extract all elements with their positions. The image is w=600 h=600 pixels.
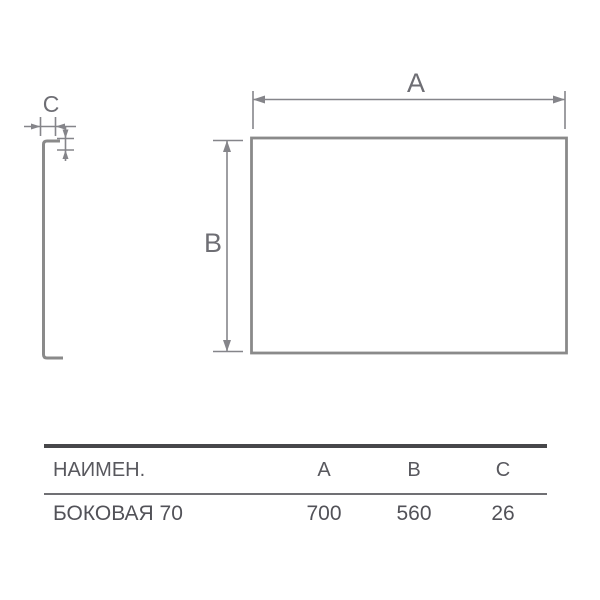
arrowhead-left-icon	[253, 96, 265, 104]
product-dimension-diagram: C A	[0, 0, 600, 600]
arrowhead-up-icon	[223, 141, 231, 153]
arrowhead-down-icon	[63, 130, 69, 139]
dimension-b: B	[204, 141, 243, 352]
arrowhead-up-icon	[63, 150, 69, 159]
cell-value-b: 560	[369, 502, 459, 526]
dim-label-a: A	[407, 68, 425, 98]
dimension-c: C	[24, 91, 76, 161]
spec-table: НАИМЕН. A B C БОКОВАЯ 70 700 560 26	[44, 444, 547, 533]
arrowhead-left-icon	[56, 124, 66, 130]
technical-drawing: C A	[0, 0, 600, 435]
spec-table-header-row: НАИМЕН. A B C	[44, 448, 547, 495]
cell-value-a: 700	[279, 502, 369, 526]
arrowhead-down-icon	[223, 340, 231, 352]
col-header-a: A	[279, 459, 369, 482]
dimension-a: A	[253, 68, 565, 129]
dim-label-b: B	[204, 228, 222, 258]
spec-table-data-row: БОКОВАЯ 70 700 560 26	[44, 495, 547, 533]
col-header-b: B	[369, 459, 459, 482]
arrowhead-right-icon	[553, 96, 565, 104]
cell-value-c: 26	[459, 502, 547, 526]
col-header-c: C	[459, 459, 547, 482]
col-header-name: НАИМЕН.	[44, 459, 279, 482]
panel-front-rectangle	[252, 138, 567, 353]
arrowhead-right-icon	[31, 124, 41, 130]
dim-label-c: C	[43, 91, 60, 117]
cell-product-name: БОКОВАЯ 70	[44, 502, 279, 526]
panel-profile-cross-section	[44, 141, 64, 358]
